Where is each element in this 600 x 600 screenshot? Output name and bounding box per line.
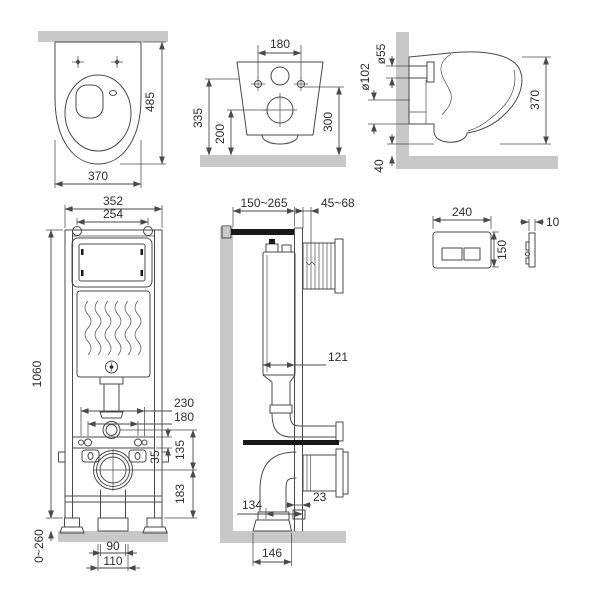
flush-button-small — [464, 248, 480, 260]
bowl-profile-line — [441, 54, 451, 115]
dim-profile-depth-23: 23 — [286, 490, 327, 505]
outlet-hole — [263, 93, 297, 127]
dim-label: 35 — [148, 450, 162, 464]
view-toilet-rear: 180 335 200 300 — [191, 37, 346, 167]
dim-label: 370 — [528, 90, 542, 110]
dim-label: 230 — [174, 396, 194, 410]
frame-body — [65, 230, 162, 518]
hanger-bolt — [144, 227, 153, 236]
floor-strip — [396, 156, 558, 169]
dim-label: 0~260 — [32, 529, 46, 563]
technical-drawing-sheet: 485 370 180 — [0, 0, 600, 600]
dim-label: 335 — [191, 108, 205, 128]
dim-label: 150 — [495, 240, 509, 260]
dim-label: 1060 — [30, 360, 44, 387]
dim-label: 90 — [106, 539, 120, 553]
dim-label: 254 — [103, 207, 123, 221]
dim-label: 240 — [452, 205, 472, 219]
water-inlet-hole — [271, 67, 289, 85]
rim-profile-line — [468, 70, 515, 131]
flush-pipe — [100, 377, 123, 439]
dim-label: 110 — [103, 554, 122, 568]
fixing-bracket — [129, 450, 146, 462]
brand-mark-icon — [106, 361, 118, 373]
dim-bolt-spacing-180: 180 — [258, 37, 301, 79]
flush-sleeve-fins — [303, 239, 343, 293]
dim-hanger-spacing-254: 254 — [77, 207, 148, 225]
dim-outlet-height-200: 200 — [213, 110, 266, 155]
dim-plate-depth: 45~68 — [296, 196, 355, 243]
floor-strip — [200, 155, 346, 167]
toilet-installation-drawing: 485 370 180 — [0, 0, 600, 600]
dim-plate-thickness-10: 10 — [520, 215, 560, 231]
dim-label: 23 — [313, 490, 327, 504]
flush-plate-side-profile — [526, 233, 536, 267]
dim-depth-485: 485 — [120, 42, 166, 164]
adjustable-foot — [143, 518, 167, 533]
dim-label: 200 — [213, 124, 227, 144]
dim-label: 485 — [143, 92, 157, 112]
wall-strip — [38, 31, 168, 42]
dim-label: 180 — [270, 37, 290, 51]
dim-label: 146 — [262, 546, 282, 560]
dim-label: 121 — [328, 350, 348, 364]
dim-label: ø55 — [374, 43, 388, 64]
wall-strip — [396, 32, 409, 156]
dim-label: 370 — [88, 169, 108, 183]
bowl-inner — [76, 85, 103, 118]
bowl-outline — [55, 42, 141, 164]
flush-bend — [272, 413, 343, 441]
dim-label: 40 — [372, 159, 386, 173]
dim-fixing-height-300: 300 — [304, 87, 344, 155]
flush-button-large — [442, 248, 462, 260]
view-toilet-side: ø55 ø102 370 40 — [358, 32, 558, 173]
dim-outlet-to-base-183: 183 — [164, 470, 197, 518]
cistern-panel — [77, 291, 150, 377]
adjustable-foot — [60, 518, 84, 533]
fixing-hole — [294, 77, 308, 91]
view-flush-plate: 240 150 10 — [433, 205, 560, 268]
dim-label: 150~265 — [240, 196, 287, 210]
dim-plate-width-240: 240 — [433, 205, 491, 229]
mount-cross-icon — [111, 56, 123, 68]
hinge-hole — [110, 91, 117, 96]
dim-label: 45~68 — [321, 196, 355, 210]
dim-label: 180 — [174, 410, 194, 424]
view-toilet-top: 485 370 — [38, 31, 168, 188]
dim-label: ø102 — [358, 63, 372, 91]
wall-strip — [220, 227, 233, 543]
inlet-stub — [409, 62, 434, 82]
lower-crossbar — [65, 496, 162, 502]
dim-label: 352 — [103, 194, 123, 208]
floor-strip — [220, 531, 346, 543]
dim-tank-depth-121: 121 — [263, 350, 348, 365]
dim-label: 10 — [546, 215, 560, 229]
fixing-hole — [251, 77, 265, 91]
view-frame-front: 352 254 1060 0~260 230 — [30, 194, 197, 571]
dim-leg-adjustment: 0~260 — [32, 508, 51, 563]
dim-label: 183 — [173, 484, 187, 504]
view-frame-side: 150~265 45~68 121 23 134 — [220, 196, 355, 566]
dim-label: 300 — [321, 112, 335, 132]
dim-label: 135 — [173, 440, 187, 460]
dim-height-1060: 1060 — [30, 230, 63, 518]
dim-install-depth: 150~265 — [233, 196, 295, 227]
inspection-window — [72, 238, 152, 287]
trap-bulge — [262, 135, 298, 144]
mounting-stud-bar — [243, 440, 339, 445]
dim-plate-height-150: 150 — [492, 232, 509, 267]
drain-elbow — [253, 452, 296, 531]
dim-stud-spacing-180: 180 — [88, 410, 194, 436]
cistern-tank — [263, 239, 295, 413]
dim-label: 134 — [242, 498, 262, 512]
hanger-bolt — [73, 227, 82, 236]
mount-cross-icon — [72, 56, 84, 68]
